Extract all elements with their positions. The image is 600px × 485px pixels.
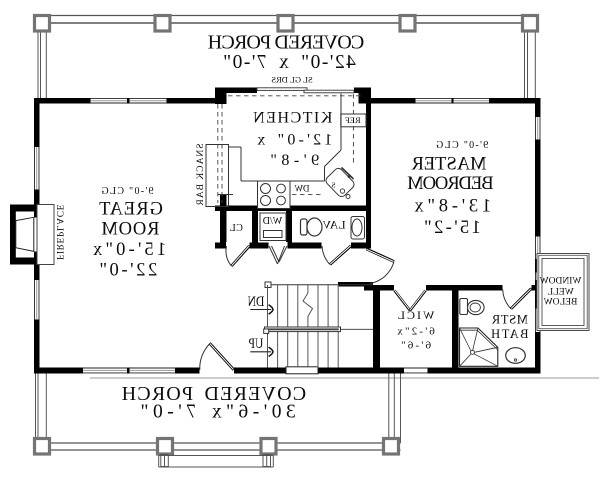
svg-text:BEDROOM: BEDROOM [408,174,494,194]
svg-text:CL: CL [229,223,243,234]
svg-text:FIREPLACE: FIREPLACE [54,204,64,260]
svg-text:KITCHEN: KITCHEN [252,109,333,126]
svg-text:MSTR: MSTR [491,313,528,327]
svg-text:12'-0" x: 12'-0" x [254,131,332,148]
svg-text:COVERED PORCH: COVERED PORCH [208,32,364,54]
svg-text:W/D: W/D [263,216,282,227]
svg-text:9'-0" CLG: 9'-0" CLG [435,140,488,151]
svg-text:15'-0"x: 15'-0"x [90,240,166,260]
svg-text:DW: DW [294,184,309,194]
svg-text:GREAT: GREAT [98,199,163,219]
svg-text:9'-8": 9'-8" [266,152,319,169]
svg-text:ROOM: ROOM [101,219,160,239]
svg-text:S: S [331,181,335,190]
svg-text:6'-2"x: 6'-2"x [395,325,435,337]
svg-text:WICL: WICL [396,308,435,322]
svg-text:6'-6": 6'-6" [399,339,431,351]
svg-text:30'-6"x 7'-0": 30'-6"x 7'-0" [136,401,296,422]
svg-text:DN: DN [247,293,264,310]
svg-text:15'-2": 15'-2" [422,218,481,238]
svg-text:LAV: LAV [322,218,345,232]
svg-text:SNACK BAR: SNACK BAR [196,143,206,206]
svg-text:WINDOW: WINDOW [540,276,582,286]
svg-text:BATH: BATH [489,327,528,341]
svg-text:MASTER: MASTER [411,155,487,175]
svg-text:SL GL DRS: SL GL DRS [271,74,313,84]
svg-text:BELOW: BELOW [544,297,578,307]
svg-text:REF: REF [345,115,361,125]
svg-text:WELL: WELL [547,287,574,297]
svg-text:13'-8"x: 13'-8"x [411,196,492,216]
svg-text:UP: UP [249,335,264,352]
svg-text:9'-0" CLG: 9'-0" CLG [100,186,153,197]
svg-text:42'-0" x 7'-0": 42'-0" x 7'-0" [222,52,356,73]
svg-text:22'-0": 22'-0" [97,260,157,280]
